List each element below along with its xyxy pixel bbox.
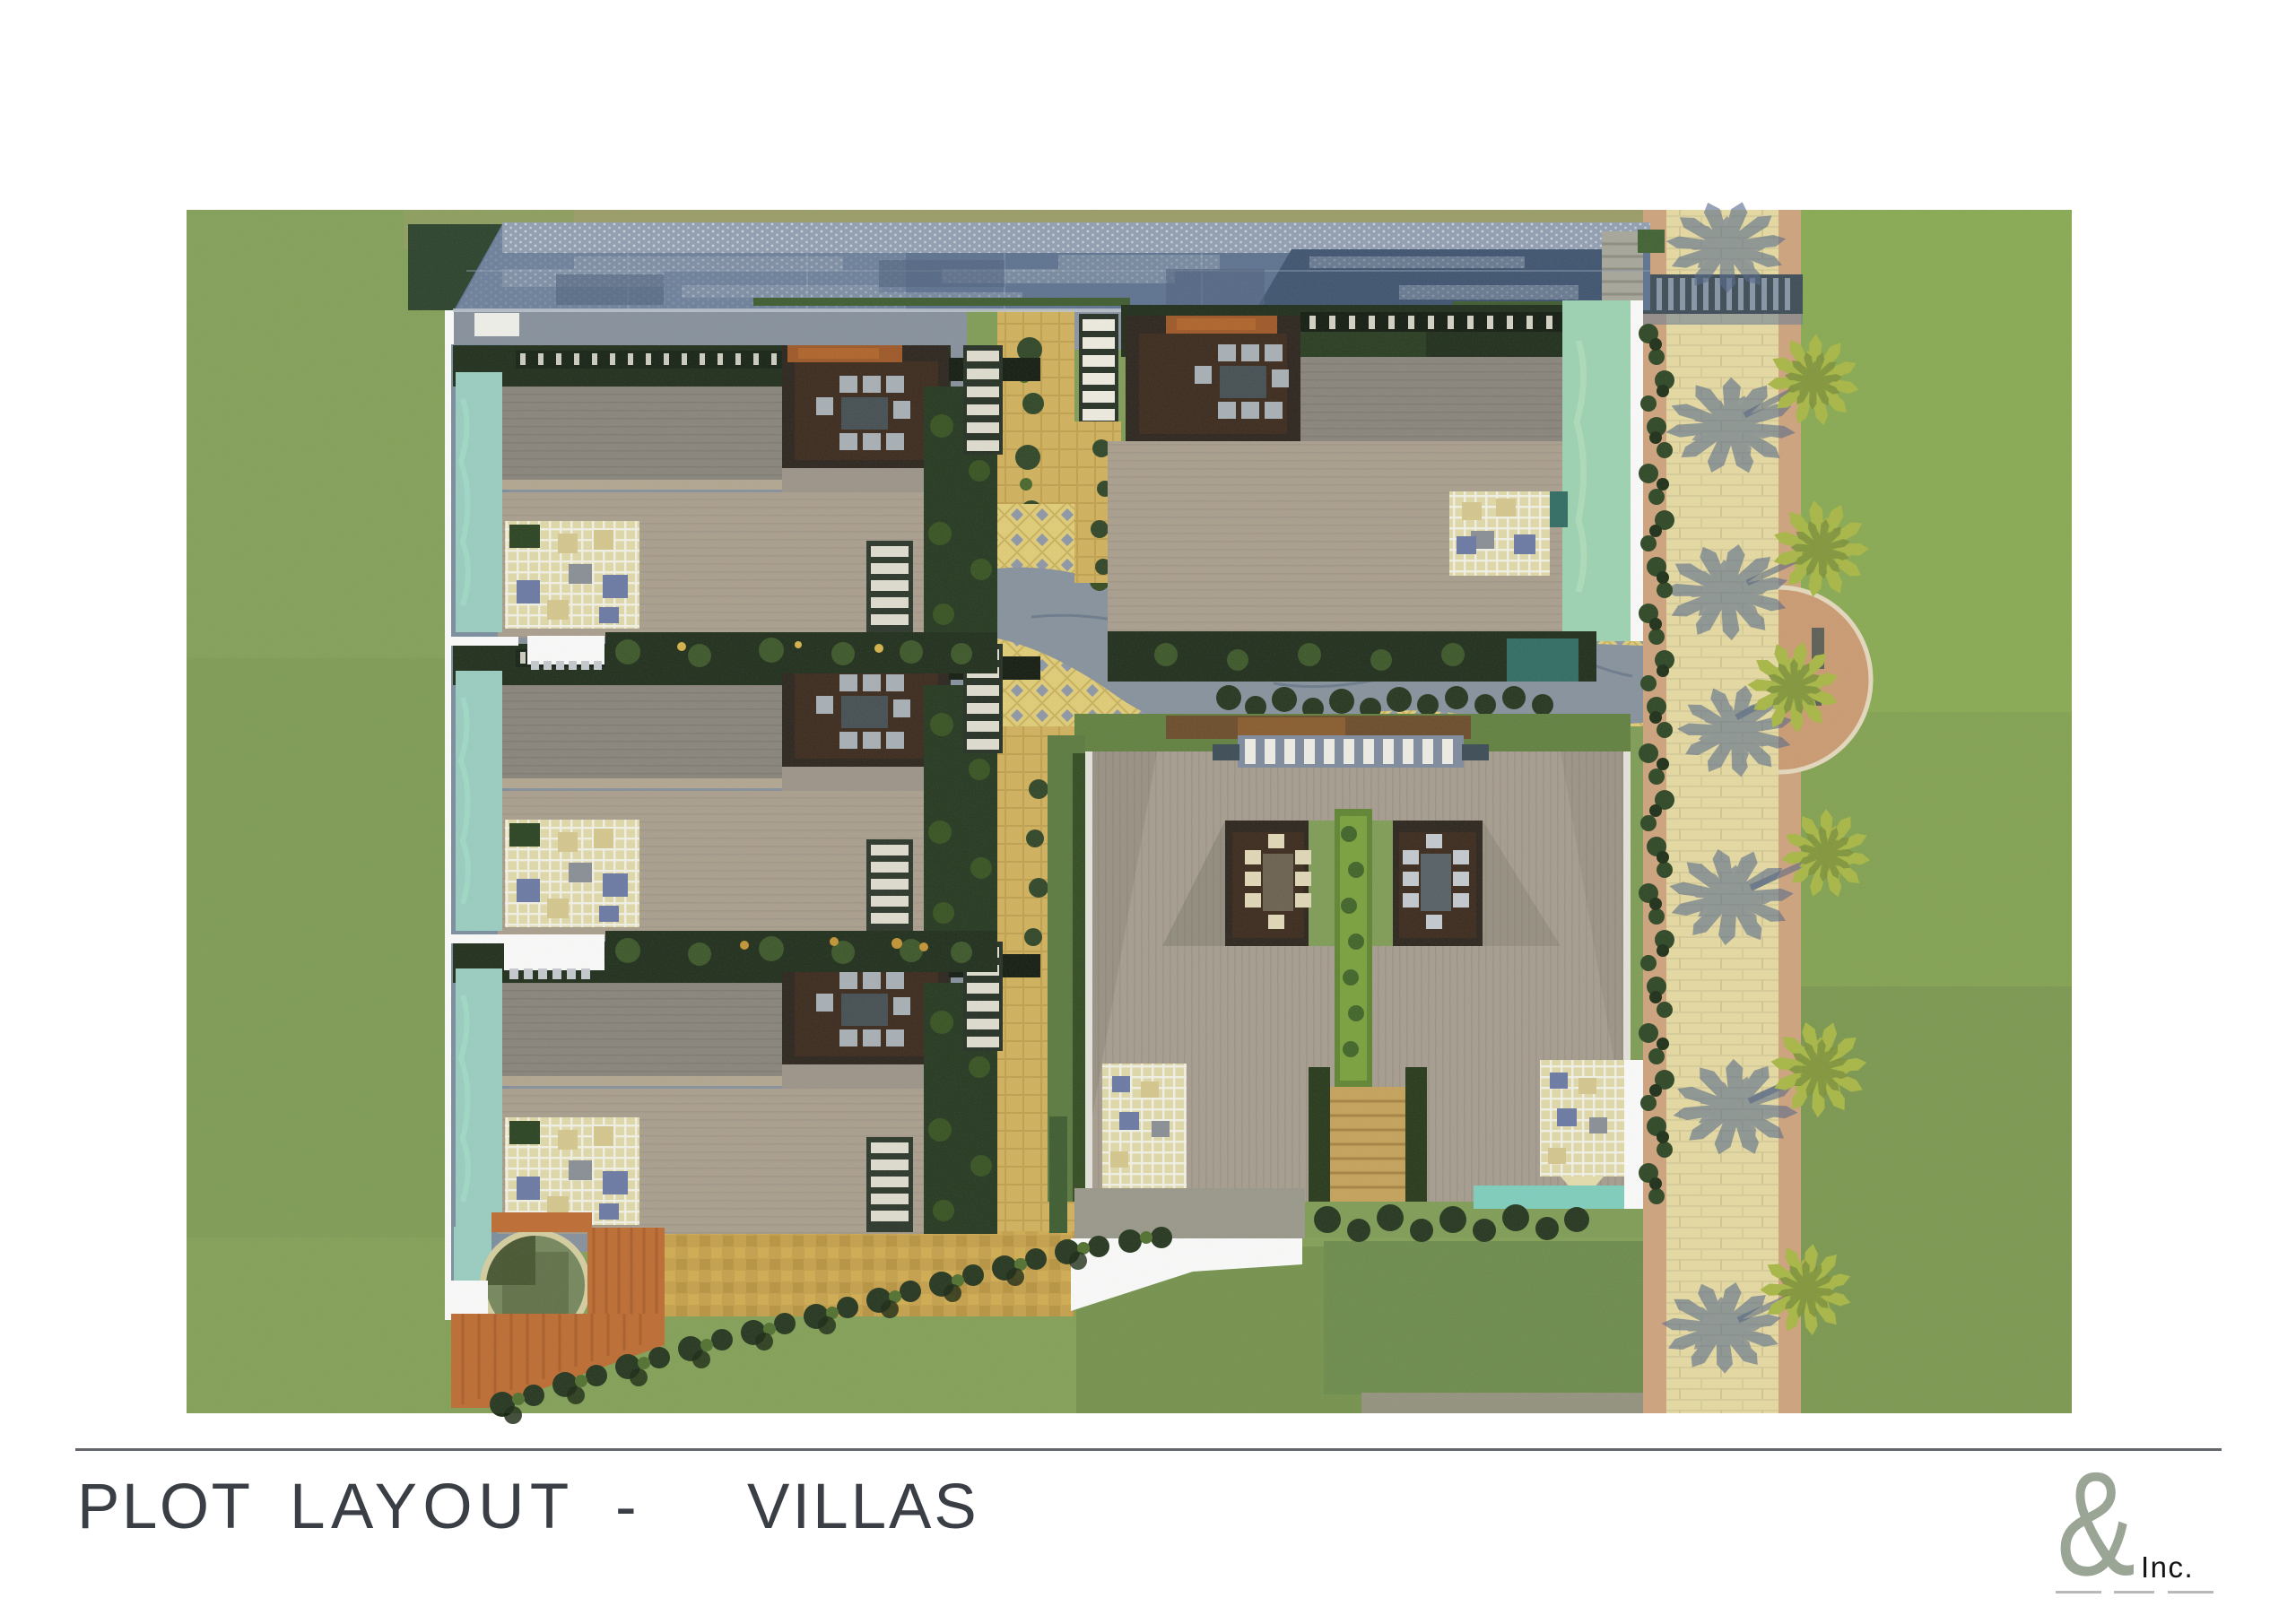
svg-text:PLOT: PLOT	[77, 1472, 252, 1542]
svg-text:LAYOUT: LAYOUT	[290, 1472, 575, 1542]
svg-text:Inc.: Inc.	[2141, 1550, 2194, 1584]
svg-text:-: -	[615, 1472, 637, 1542]
svg-text:&: &	[2057, 1441, 2135, 1606]
svg-text:VILLAS: VILLAS	[747, 1472, 979, 1542]
